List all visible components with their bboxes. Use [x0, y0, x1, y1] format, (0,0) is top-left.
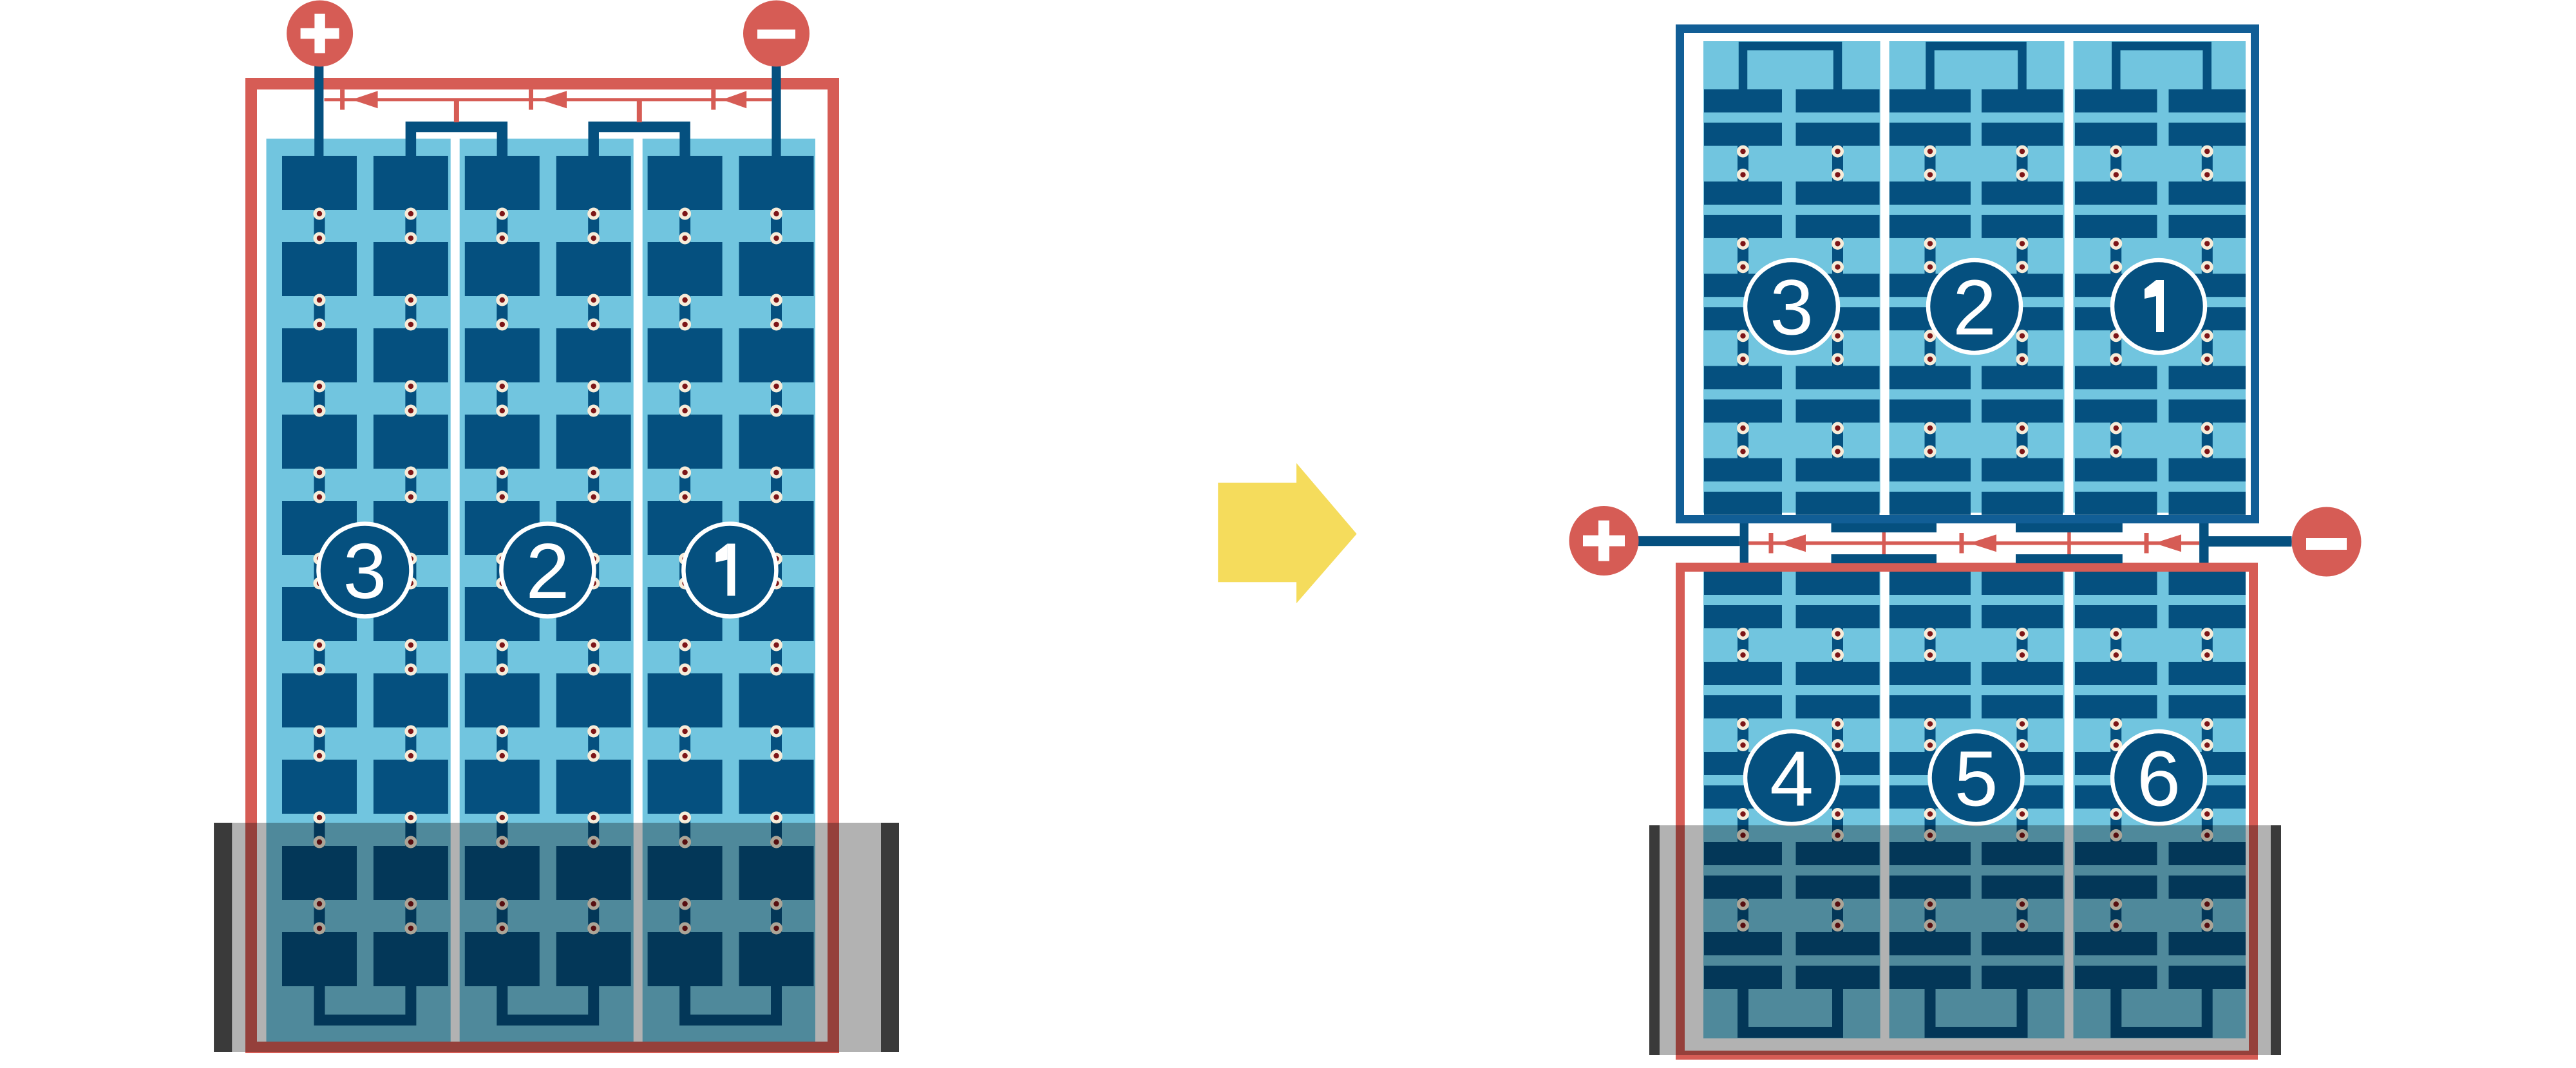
- svg-text:5: 5: [1955, 735, 1998, 823]
- svg-text:2: 2: [1953, 264, 1996, 351]
- svg-text:3: 3: [1770, 264, 1814, 351]
- svg-text:3: 3: [343, 527, 387, 615]
- svg-text:4: 4: [1770, 735, 1814, 823]
- svg-text:6: 6: [2137, 735, 2181, 823]
- svg-text:2: 2: [526, 527, 569, 615]
